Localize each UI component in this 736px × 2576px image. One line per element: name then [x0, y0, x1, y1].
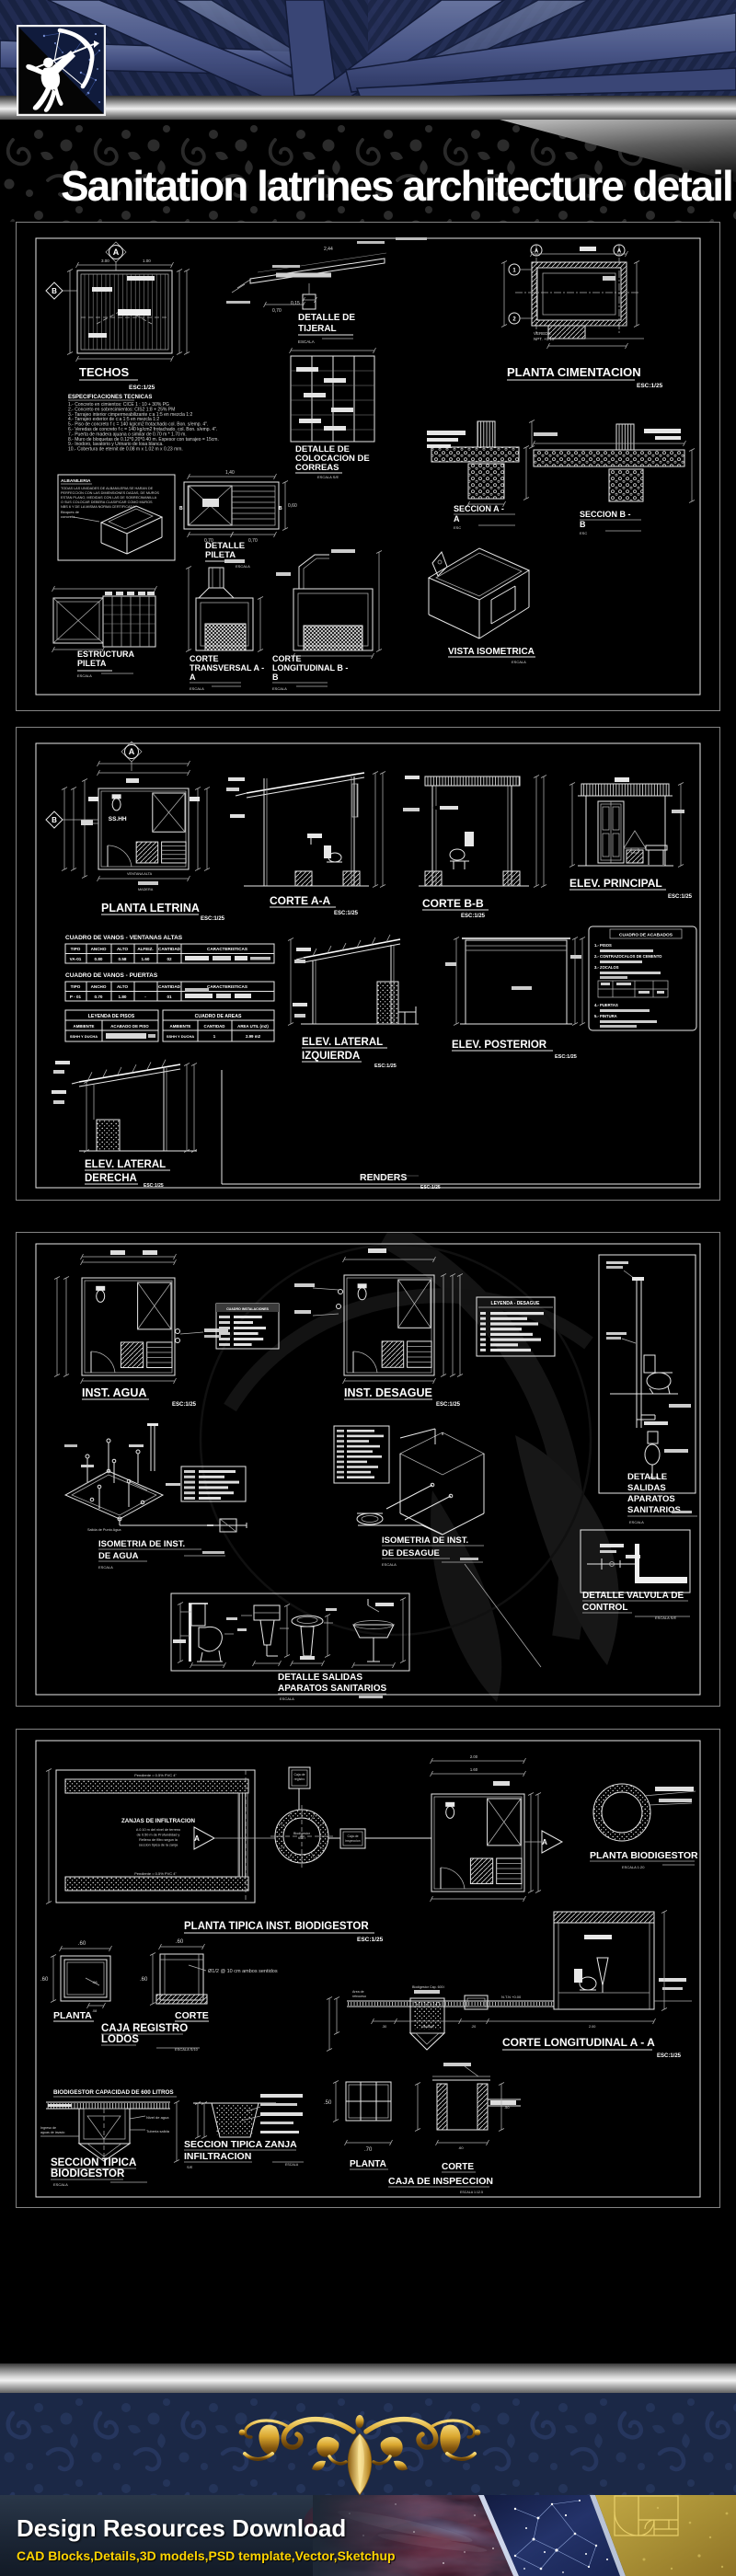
svg-text:600 l: 600 l	[298, 1836, 305, 1840]
svg-text:DETALLE: DETALLE	[627, 1472, 667, 1482]
svg-text:PLANTA CIMENTACION: PLANTA CIMENTACION	[507, 365, 641, 379]
svg-text:DETALLE SALIDAS: DETALLE SALIDAS	[278, 1673, 362, 1683]
svg-text:PLANTA: PLANTA	[350, 2159, 386, 2169]
svg-text:Ø1/2 @ 10 cm ambos sentidos: Ø1/2 @ 10 cm ambos sentidos	[208, 1969, 278, 1974]
svg-text:CORTE A-A: CORTE A-A	[270, 894, 331, 907]
svg-text:ESCALA: ESCALA	[298, 339, 315, 344]
svg-text:SECCION TIPICA: SECCION TIPICA	[51, 2157, 136, 2168]
svg-text:CUADRO DE VANOS - VENTANAS AL: CUADRO DE VANOS - VENTANAS ALTAS	[65, 935, 183, 941]
svg-text:4.- PUERTAS: 4.- PUERTAS	[594, 1003, 618, 1007]
svg-text:0.58: 0.58	[119, 957, 127, 961]
svg-text:CUADRO DE ACABADOS: CUADRO DE ACABADOS	[619, 933, 673, 938]
svg-text:ESCALA: ESCALA	[236, 564, 250, 569]
svg-text:ALTO: ALTO	[117, 984, 129, 989]
svg-text:2.00: 2.00	[589, 2025, 595, 2029]
svg-text:INFILTRACION: INFILTRACION	[184, 2151, 251, 2162]
svg-text:CUADRO INSTALACIONES: CUADRO INSTALACIONES	[226, 1307, 269, 1311]
svg-text:A: A	[542, 1838, 547, 1846]
svg-text:SECCION TIPICA ZANJA: SECCION TIPICA ZANJA	[184, 2139, 297, 2150]
svg-text:.60: .60	[176, 1939, 184, 1945]
svg-text:LODOS: LODOS	[101, 2034, 139, 2045]
svg-text:A: A	[617, 249, 622, 255]
svg-text:ESCALA: ESCALA	[77, 673, 92, 678]
svg-text:CARACTERISTICAS: CARACTERISTICAS	[207, 947, 247, 951]
svg-text:.50: .50	[324, 2100, 332, 2106]
svg-text:SALIDAS: SALIDAS	[627, 1483, 666, 1493]
svg-text:PLANTA TIPICA INST. BIODIGESTO: PLANTA TIPICA INST. BIODIGESTOR	[184, 1921, 369, 1932]
svg-text:1.00: 1.00	[143, 259, 151, 263]
svg-text:AMBIENTE: AMBIENTE	[74, 1024, 95, 1029]
svg-text:ESC:1/25: ESC:1/25	[201, 916, 225, 922]
svg-text:LONGITUDINAL B -: LONGITUDINAL B -	[272, 663, 348, 673]
svg-text:TRANSVERSAL A -: TRANSVERSAL A -	[190, 663, 264, 673]
svg-text:ESC:1/25: ESC:1/25	[374, 1064, 397, 1069]
svg-text:de 0.50 m de Profundidad y: de 0.50 m de Profundidad y	[137, 1834, 180, 1837]
svg-text:CORTE B-B: CORTE B-B	[422, 897, 484, 910]
svg-text:concreto: concreto	[61, 514, 75, 519]
svg-text:0,70: 0,70	[248, 538, 258, 544]
svg-text:ESTRUCTURA: ESTRUCTURA	[77, 650, 134, 659]
svg-text:01: 01	[167, 995, 172, 999]
svg-text:A: A	[190, 673, 196, 682]
svg-text:.60: .60	[458, 2145, 464, 2150]
svg-text:Biodigestor Cap. 600 l: Biodigestor Cap. 600 l	[412, 1985, 445, 1989]
svg-text:ISOMETRIA DE INST.: ISOMETRIA DE INST.	[382, 1535, 468, 1546]
svg-text:B: B	[52, 816, 57, 824]
svg-text:ESC:1/25: ESC:1/25	[668, 894, 693, 900]
svg-text:DETALLE DE: DETALLE DE	[298, 313, 355, 323]
svg-text:ESCALA 1:20: ESCALA 1:20	[622, 1865, 645, 1869]
svg-text:1,40: 1,40	[225, 470, 235, 476]
svg-text:ZANJAS DE INFILTRACION: ZANJAS DE INFILTRACION	[121, 1818, 196, 1824]
svg-text:CORREAS: CORREAS	[295, 463, 339, 473]
svg-text:INST. DESAGUE: INST. DESAGUE	[344, 1386, 432, 1399]
svg-text:SSHH Y DUCHA: SSHH Y DUCHA	[167, 1034, 194, 1039]
svg-text:A: A	[129, 747, 135, 756]
svg-text:.60: .60	[140, 1977, 148, 1983]
svg-text:ESC:1/25: ESC:1/25	[436, 1402, 461, 1408]
svg-text:1.60: 1.60	[142, 957, 150, 961]
svg-text:B: B	[580, 520, 586, 529]
svg-text:ELEV. PRINCIPAL: ELEV. PRINCIPAL	[569, 877, 662, 890]
svg-text:2,44: 2,44	[324, 247, 333, 252]
svg-text:APARATOS SANITARIOS: APARATOS SANITARIOS	[278, 1684, 386, 1694]
svg-text:TECHOS: TECHOS	[79, 365, 130, 379]
svg-text:ESC:1/25: ESC:1/25	[357, 1937, 384, 1943]
svg-text:IZQUIERDA: IZQUIERDA	[302, 1051, 360, 1062]
svg-text:0,70: 0,70	[272, 308, 282, 314]
svg-text:ESC:1/25: ESC:1/25	[555, 1054, 577, 1060]
svg-text:5.- PINTURA: 5.- PINTURA	[594, 1014, 617, 1018]
svg-text:A 0.10 m del nivel de terreno: A 0.10 m del nivel de terreno	[136, 1828, 180, 1832]
svg-text:inspeccion: inspeccion	[345, 1839, 361, 1843]
svg-text:DE AGUA: DE AGUA	[98, 1551, 139, 1561]
svg-text:CAJA DE INSPECCION: CAJA DE INSPECCION	[388, 2176, 493, 2187]
svg-text:PLANTA BIODIGESTOR: PLANTA BIODIGESTOR	[590, 1850, 698, 1861]
svg-text:CUADRO DE AREAS: CUADRO DE AREAS	[195, 1014, 242, 1019]
svg-text:3.- ZOCALOS: 3.- ZOCALOS	[594, 965, 619, 970]
svg-text:ALBANILERIA: ALBANILERIA	[61, 478, 91, 484]
svg-text:VENTANA ALTA: VENTANA ALTA	[127, 872, 153, 876]
svg-text:DERECHA: DERECHA	[85, 1173, 137, 1184]
svg-text:A: A	[113, 247, 120, 257]
svg-text:B: B	[279, 506, 282, 512]
svg-text:ESPECIFICACIONES TECNICAS: ESPECIFICACIONES TECNICAS	[68, 395, 152, 400]
svg-text:.50: .50	[504, 2105, 510, 2110]
svg-text:B: B	[272, 673, 279, 682]
svg-text:NBS 6 Y DE LA MISMA NORMA CERT: NBS 6 Y DE LA MISMA NORMA CERTIFICADA.	[61, 505, 136, 509]
svg-text:ANCHO: ANCHO	[91, 947, 107, 951]
svg-text:ESC:1/25: ESC:1/25	[129, 385, 155, 391]
svg-text:S/E: S/E	[187, 2165, 193, 2169]
svg-text:SS.HH: SS.HH	[109, 816, 127, 822]
svg-text:VA-01: VA-01	[70, 957, 82, 961]
svg-text:Caja de: Caja de	[293, 1773, 305, 1777]
svg-text:CORTE LONGITUDINAL A - A: CORTE LONGITUDINAL A - A	[502, 2036, 655, 2049]
svg-text:TIJERAL: TIJERAL	[298, 324, 337, 334]
svg-text:BIODIGESTOR CAPACIDAD DE 600 L: BIODIGESTOR CAPACIDAD DE 600 LITROS	[53, 2089, 174, 2096]
svg-text:CORTE: CORTE	[442, 2162, 474, 2172]
svg-text:ESCALA: ESCALA	[285, 2163, 299, 2167]
svg-text:Ingreso de: Ingreso de	[40, 2126, 56, 2130]
svg-text:ALTO: ALTO	[117, 947, 129, 951]
svg-text:ESC:1/25: ESC:1/25	[172, 1402, 197, 1408]
svg-text:BIODIGESTOR: BIODIGESTOR	[51, 2168, 125, 2179]
svg-text:AREA UTIL (m2): AREA UTIL (m2)	[237, 1024, 269, 1029]
svg-text:.08: .08	[92, 2009, 97, 2013]
svg-text:Biodigestor: Biodigestor	[293, 1832, 311, 1835]
svg-text:1.60: 1.60	[470, 1767, 478, 1772]
svg-text:ESC: ESC	[454, 525, 461, 530]
svg-text:ESC:1/25: ESC:1/25	[334, 911, 359, 916]
svg-text:ESCALA: ESCALA	[190, 686, 204, 691]
svg-text:CONTROL: CONTROL	[582, 1603, 627, 1613]
svg-text:.08: .08	[92, 1980, 98, 1984]
svg-text:VEREDA: VEREDA	[534, 331, 551, 336]
svg-text:PILETA: PILETA	[77, 659, 107, 668]
svg-text:ANCHO: ANCHO	[91, 984, 107, 989]
svg-text:ELEV. LATERAL: ELEV. LATERAL	[302, 1037, 383, 1048]
svg-text:APARATOS: APARATOS	[627, 1494, 675, 1504]
svg-text:.70: .70	[364, 2147, 373, 2153]
svg-text:CANTIDAD: CANTIDAD	[158, 984, 181, 989]
svg-text:02: 02	[167, 957, 172, 961]
svg-text:2.- CONTRAZOCALOS DE CEMENTO: 2.- CONTRAZOCALOS DE CEMENTO	[594, 954, 662, 959]
svg-text:B: B	[52, 287, 57, 295]
svg-text:Pendiente = 0.5% PVC 4": Pendiente = 0.5% PVC 4"	[134, 1773, 177, 1777]
svg-text:.30: .30	[382, 2025, 386, 2029]
svg-text:ESCALA: ESCALA	[629, 1520, 644, 1524]
svg-text:PLANTA: PLANTA	[53, 2010, 92, 2021]
svg-text:LEYENDA - DESAGUE: LEYENDA - DESAGUE	[491, 1301, 541, 1306]
svg-text:1.80: 1.80	[119, 995, 127, 999]
svg-text:CARACTERISTICAS: CARACTERISTICAS	[207, 984, 247, 989]
svg-text:CANTIDAD: CANTIDAD	[158, 947, 181, 951]
svg-text:DETALLE VALVULA DE: DETALLE VALVULA DE	[582, 1591, 684, 1601]
svg-text:CORTE: CORTE	[175, 2010, 209, 2021]
svg-text:Area de: Area de	[352, 1990, 364, 1994]
svg-text:VISTA ISOMETRICA: VISTA ISOMETRICA	[448, 647, 535, 657]
svg-text:PERFECCION CON LAS DIMENSIONES: PERFECCION CON LAS DIMENSIONES DADAS, DE…	[61, 491, 159, 495]
svg-text:A: A	[454, 514, 460, 523]
svg-text:ESCALA: ESCALA	[280, 1696, 294, 1701]
svg-text:B: B	[179, 506, 183, 512]
svg-text:INST. AGUA: INST. AGUA	[82, 1386, 146, 1399]
svg-text:ESC: ESC	[580, 531, 587, 535]
svg-text:Caja de: Caja de	[347, 1834, 358, 1838]
svg-text:RENDERS: RENDERS	[360, 1172, 407, 1183]
svg-text:AMBIENTE: AMBIENTE	[170, 1024, 191, 1029]
svg-text:SECCION A -: SECCION A -	[454, 504, 504, 513]
svg-text:ESCALA S/E: ESCALA S/E	[317, 475, 339, 479]
svg-text:Nivel de agua: Nivel de agua	[146, 2115, 169, 2120]
svg-text:P - 01: P - 01	[70, 995, 82, 999]
svg-text:CUADRO DE VANOS - PUERTAS: CUADRO DE VANOS - PUERTAS	[65, 972, 158, 979]
svg-text:TODAS LAS UNIDADES DE ALBANILE: TODAS LAS UNIDADES DE ALBANILERIA SE HAR…	[61, 487, 154, 490]
svg-text:0.70: 0.70	[95, 995, 103, 999]
svg-text:ESCALA: ESCALA	[382, 1562, 397, 1567]
svg-text:ALFEIZ.: ALFEIZ.	[137, 947, 153, 951]
svg-text:ESCALA: ESCALA	[512, 660, 526, 664]
svg-text:ESCALA 1:12.5: ESCALA 1:12.5	[460, 2191, 483, 2194]
svg-text:0,60: 0,60	[288, 503, 297, 509]
svg-text:Salida de Punto Agua: Salida de Punto Agua	[87, 1528, 121, 1532]
svg-text:NPT. +0.15: NPT. +0.15	[534, 337, 555, 341]
svg-text:SANITARIOS: SANITARIOS	[627, 1505, 681, 1515]
svg-text:retroceso: retroceso	[352, 1995, 366, 1998]
svg-text:ESC:1/25: ESC:1/25	[637, 383, 663, 389]
svg-text:2.00: 2.00	[470, 1754, 478, 1759]
svg-text:A: A	[535, 249, 539, 255]
svg-text:CAJA REGISTRO: CAJA REGISTRO	[101, 2023, 188, 2034]
svg-text:aguas de lavado: aguas de lavado	[40, 2131, 64, 2134]
svg-text:Pendiente = 0.5% PVC 4": Pendiente = 0.5% PVC 4"	[134, 1871, 177, 1876]
svg-text:CORTE: CORTE	[190, 654, 219, 663]
svg-text:ESC:1/25: ESC:1/25	[657, 2053, 682, 2059]
svg-text:1.- PISOS: 1.- PISOS	[594, 943, 612, 948]
svg-text:CORTE: CORTE	[272, 654, 302, 663]
svg-text:TIPO: TIPO	[71, 947, 81, 951]
svg-text:2.99 m2: 2.99 m2	[246, 1034, 261, 1039]
svg-text:LEYENDA DE PISOS: LEYENDA DE PISOS	[88, 1014, 135, 1019]
svg-text:PILETA: PILETA	[205, 550, 236, 560]
svg-text:DE DESAGUE: DE DESAGUE	[382, 1548, 440, 1558]
svg-text:ESC:1/25: ESC:1/25	[144, 1183, 164, 1189]
svg-text:seccion tipica de la zanja: seccion tipica de la zanja	[139, 1844, 178, 1847]
svg-text:Relleno de filtro segun la: Relleno de filtro segun la	[139, 1838, 178, 1842]
svg-text:Tuberia salida: Tuberia salida	[146, 2129, 170, 2133]
svg-text:Variable: Variable	[421, 2025, 434, 2029]
svg-text:ACABADO DE PISO: ACABADO DE PISO	[110, 1024, 149, 1029]
svg-text:10.- Cobertura de eternit de 0: 10.- Cobertura de eternit de 0.08 m x 1.…	[68, 447, 183, 453]
svg-text:N.T.N +0.00: N.T.N +0.00	[501, 1995, 522, 1999]
svg-text:ESCALA: ESCALA	[98, 1565, 113, 1570]
svg-text:ESC:1/25: ESC:1/25	[420, 1185, 441, 1190]
svg-text:A: A	[194, 1834, 200, 1843]
svg-text:registro: registro	[294, 1777, 305, 1781]
svg-text:.20: .20	[471, 2025, 476, 2029]
svg-text:3.00: 3.00	[101, 259, 109, 263]
svg-text:CANTIDAD: CANTIDAD	[204, 1024, 225, 1029]
svg-text:ESCALA: ESCALA	[272, 686, 287, 691]
svg-text:ELEV. POSTERIOR: ELEV. POSTERIOR	[452, 1040, 547, 1051]
svg-text:SECCION B -: SECCION B -	[580, 510, 631, 519]
svg-text:0,15: 0,15	[291, 301, 300, 306]
svg-text:PLANTA LETRINA: PLANTA LETRINA	[101, 902, 200, 914]
svg-text:ESC:1/25: ESC:1/25	[461, 914, 486, 919]
svg-text:ISOMETRIA DE INST.: ISOMETRIA DE INST.	[98, 1539, 185, 1549]
svg-text:SSHH Y DUCHA: SSHH Y DUCHA	[70, 1034, 98, 1039]
svg-text:ELEV. LATERAL: ELEV. LATERAL	[85, 1159, 166, 1170]
svg-text:MADERA: MADERA	[138, 888, 154, 891]
svg-text:0.80: 0.80	[95, 957, 103, 961]
svg-text:ESCALA: ESCALA	[53, 2182, 68, 2187]
svg-text:.60: .60	[40, 1977, 49, 1983]
svg-text:ESTAN PLANO, MEDIDAS CON LA: ESTAN PLANO, MEDIDAS CON LAS DE SOBRECIM…	[61, 496, 157, 500]
svg-text:.60: .60	[78, 1941, 86, 1947]
svg-text:TIPO: TIPO	[71, 984, 81, 989]
svg-text:O SUS COLOCAR DEBERA CLASIFI: O SUS COLOCAR DEBERA CLASIFICAR COMO MUR…	[61, 500, 153, 504]
